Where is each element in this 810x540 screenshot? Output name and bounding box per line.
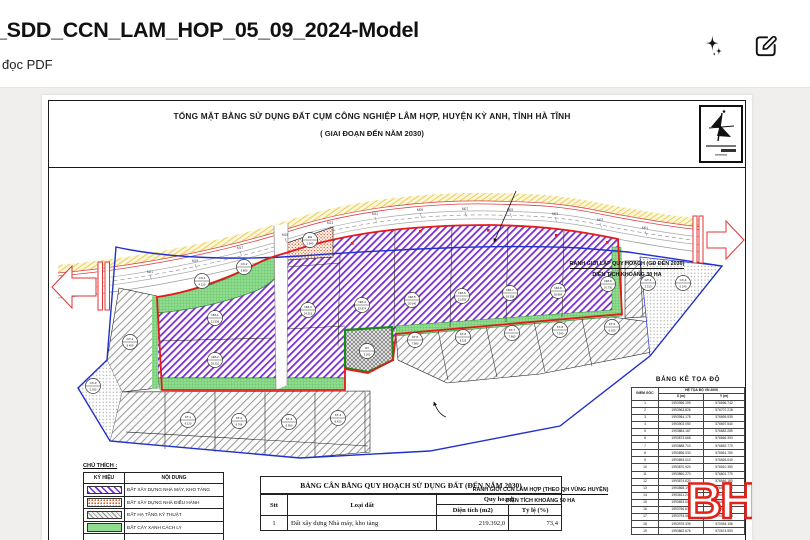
svg-text:M09: M09 bbox=[417, 208, 423, 212]
legend-swatch-orange-dots bbox=[87, 498, 122, 507]
svg-text:7.540: 7.540 bbox=[557, 331, 564, 335]
legend-col-content: NỘI DUNG bbox=[125, 473, 224, 484]
coords-row: 41993903.090576697.540 bbox=[632, 421, 745, 428]
legend-row: ĐẤT HẠ TẦNG KỸ THUẬT bbox=[84, 509, 224, 522]
file-title: _SDD_CCN_LAM_HOP_05_09_2024-Model bbox=[0, 18, 419, 43]
svg-text:8.764: 8.764 bbox=[236, 422, 243, 426]
svg-text:7.860: 7.860 bbox=[509, 334, 516, 338]
svg-text:HT: HT bbox=[365, 346, 369, 350]
balance-col-dientich: Diện tích (m2) bbox=[437, 505, 509, 516]
coords-row: 131993868.190576616.340 bbox=[632, 485, 745, 492]
svg-text:NM-7: NM-7 bbox=[506, 288, 514, 292]
coords-table: ĐIỂM GÓC HỆ TỌA ĐỘ VN 2000 X (m) Y (m) 1… bbox=[631, 387, 745, 535]
coords-row: 161993766.674570040.492 bbox=[632, 507, 745, 514]
svg-text:6.240: 6.240 bbox=[680, 284, 687, 288]
svg-text:NM-8: NM-8 bbox=[554, 286, 562, 290]
coords-col-y: Y (m) bbox=[704, 393, 745, 400]
balance-col-stt: Stt bbox=[261, 495, 288, 516]
annotation-30ha: RANH GIỚI LẬP QUY HOẠCH (GĐ ĐẾN 2030) DI… bbox=[500, 252, 752, 278]
svg-text:KT-1: KT-1 bbox=[185, 415, 192, 419]
svg-text:KT-9: KT-9 bbox=[609, 322, 616, 326]
legend-row: ĐẤT CÂY XANH CÁCH LY bbox=[84, 521, 224, 534]
svg-text:24.315: 24.315 bbox=[304, 311, 313, 315]
svg-text:CX-2: CX-2 bbox=[241, 262, 248, 266]
svg-text:8.950: 8.950 bbox=[286, 423, 293, 427]
legend-col-symbol: KÝ HIỆU bbox=[84, 473, 125, 484]
coords-col-point: ĐIỂM GÓC bbox=[632, 388, 659, 401]
internal-road bbox=[274, 223, 288, 390]
svg-text:M02: M02 bbox=[597, 218, 603, 222]
svg-text:ĐH: ĐH bbox=[308, 235, 312, 239]
legend-swatch-green bbox=[87, 523, 122, 532]
coords-row: 171993793.067570049.124 bbox=[632, 514, 745, 521]
legend-table: KÝ HIỆU NỘI DUNG ĐẤT XÂY DỰNG NHÀ MÁY, K… bbox=[83, 472, 224, 540]
svg-text:M21: M21 bbox=[147, 270, 153, 274]
svg-text:7.980: 7.980 bbox=[412, 341, 419, 345]
pdf-viewer-toolbar: _SDD_CCN_LAM_HOP_05_09_2024-Model đọc PD… bbox=[0, 0, 810, 88]
coords-row: 81993896.030576561.760 bbox=[632, 450, 745, 457]
legend-swatch-purple-hatch bbox=[87, 486, 122, 495]
svg-text:KT-5: KT-5 bbox=[412, 335, 419, 339]
coords-row: 111993860.270576601.770 bbox=[632, 471, 745, 478]
balance-table: Stt Loại đất Quy hoạch Diện tích (m2) Tỷ… bbox=[260, 494, 562, 531]
svg-text:NM-2: NM-2 bbox=[211, 355, 219, 359]
balance-title: BẢNG CÂN BẰNG QUY HOẠCH SỬ DỤNG ĐẤT (ĐẾN… bbox=[260, 476, 562, 494]
svg-text:5.310: 5.310 bbox=[645, 284, 652, 288]
coords-row: 11993996.199576696.742 bbox=[632, 400, 745, 407]
svg-text:NM-4: NM-4 bbox=[358, 300, 366, 304]
legend-title: CHÚ THÍCH : bbox=[83, 463, 224, 469]
coords-row: 51993884.167576682.285 bbox=[632, 428, 745, 435]
svg-text:M19: M19 bbox=[192, 259, 198, 263]
coords-row: 21993963.826576707.218 bbox=[632, 407, 745, 414]
svg-text:KT-6: KT-6 bbox=[460, 332, 467, 336]
svg-text:3.850: 3.850 bbox=[241, 268, 248, 272]
svg-text:8.420: 8.420 bbox=[335, 419, 342, 423]
coords-row: 101993870.920576510.350 bbox=[632, 464, 745, 471]
balance-col-loai: Loại đất bbox=[287, 495, 436, 516]
ai-sparkle-icon[interactable] bbox=[701, 33, 727, 59]
svg-text:NM-9: NM-9 bbox=[604, 279, 612, 283]
drawing-title: TỔNG MẶT BẰNG SỬ DỤNG ĐẤT CỤM CÔNG NGHIỆ… bbox=[62, 111, 682, 121]
legend-label: ĐẤT CÂY XANH CÁCH LY bbox=[125, 521, 224, 534]
svg-text:NM-1: NM-1 bbox=[211, 313, 219, 317]
svg-text:M15: M15 bbox=[282, 233, 288, 237]
coords-row: 61993873.668576666.393 bbox=[632, 436, 745, 443]
svg-text:KT-4: KT-4 bbox=[335, 413, 342, 417]
coords-row: 141993611.249576422.610 bbox=[632, 492, 745, 499]
svg-text:KT-3: KT-3 bbox=[286, 417, 293, 421]
balance-row: 1Đất xây dựng Nhà máy, kho tàng219.392,0… bbox=[261, 516, 562, 531]
coords-col-x: X (m) bbox=[659, 393, 704, 400]
svg-text:3.260: 3.260 bbox=[364, 352, 371, 356]
svg-text:KT-8: KT-8 bbox=[557, 325, 564, 329]
svg-text:20.640: 20.640 bbox=[408, 301, 417, 305]
svg-text:NM-6: NM-6 bbox=[458, 291, 466, 295]
svg-text:GT-2: GT-2 bbox=[645, 278, 652, 282]
svg-text:M13: M13 bbox=[327, 221, 333, 225]
coords-row: 71993888.710576652.770 bbox=[632, 443, 745, 450]
leader-50ha bbox=[434, 402, 446, 417]
coords-row: 151993653.007576918.420 bbox=[632, 499, 745, 506]
svg-text:M11: M11 bbox=[372, 212, 378, 216]
svg-text:19.874: 19.874 bbox=[358, 306, 367, 310]
svg-text:KT-2: KT-2 bbox=[236, 416, 243, 420]
coords-row: 31993954.175576695.939 bbox=[632, 414, 745, 421]
coords-row: 91993893.010576526.040 bbox=[632, 457, 745, 464]
svg-text:16.730: 16.730 bbox=[604, 285, 613, 289]
legend-swatch-gray-hatch bbox=[87, 511, 122, 520]
svg-text:M05: M05 bbox=[507, 208, 513, 212]
pdf-page[interactable]: TỔNG MẶT BẰNG SỬ DỤNG ĐẤT CỤM CÔNG NGHIỆ… bbox=[42, 95, 752, 540]
svg-text:CX-4: CX-4 bbox=[680, 278, 687, 282]
landuse-balance-table: BẢNG CÂN BẰNG QUY HOẠCH SỬ DỤNG ĐẤT (ĐẾN… bbox=[260, 476, 562, 531]
legend-row: ĐẤT XÂY DỰNG NHÀ MÁY, KHO TÀNG bbox=[84, 484, 224, 497]
file-subtitle: đọc PDF bbox=[2, 57, 53, 72]
svg-text:21.092: 21.092 bbox=[458, 297, 467, 301]
company-logo-box bbox=[699, 105, 743, 163]
svg-text:M17: M17 bbox=[237, 246, 243, 250]
balance-col-quyhoach: Quy hoạch bbox=[437, 495, 562, 505]
svg-text:CX-1: CX-1 bbox=[199, 276, 206, 280]
svg-text:9.120: 9.120 bbox=[185, 421, 192, 425]
svg-text:8.115: 8.115 bbox=[460, 338, 467, 342]
svg-text:6.920: 6.920 bbox=[609, 328, 616, 332]
svg-text:8.450: 8.450 bbox=[127, 343, 134, 347]
svg-text:21.506: 21.506 bbox=[211, 319, 220, 323]
coords-row: 121993874.620576646.180 bbox=[632, 478, 745, 485]
svg-text:GT-1: GT-1 bbox=[127, 337, 134, 341]
svg-text:19.358: 19.358 bbox=[506, 294, 515, 298]
legend-label: ĐẤT XÂY DỰNG NHÀ ĐIỀU HÀNH bbox=[125, 496, 224, 509]
svg-text:M03: M03 bbox=[552, 212, 558, 216]
svg-text:NM-3: NM-3 bbox=[304, 305, 312, 309]
svg-text:4.120: 4.120 bbox=[199, 282, 206, 286]
viewer-canvas: TỔNG MẶT BẰNG SỬ DỤNG ĐẤT CỤM CÔNG NGHIỆ… bbox=[0, 88, 810, 540]
balance-col-tyle: Tỷ lệ (%) bbox=[509, 505, 562, 516]
svg-text:2.940: 2.940 bbox=[307, 241, 314, 245]
coords-row: 191993862.676570674.593 bbox=[632, 528, 745, 535]
svg-text:M01: M01 bbox=[642, 226, 648, 230]
svg-text:18.210: 18.210 bbox=[211, 361, 220, 365]
coordinate-table: BẢNG KÊ TỌA ĐỘ ĐIỂM GÓC HỆ TỌA ĐỘ VN 200… bbox=[630, 376, 746, 535]
svg-text:CX-3: CX-3 bbox=[90, 381, 97, 385]
drawing-subtitle: ( GIAI ĐOẠN ĐẾN NĂM 2030) bbox=[62, 129, 682, 138]
svg-text:KT-7: KT-7 bbox=[509, 328, 516, 332]
edit-icon[interactable] bbox=[753, 33, 779, 59]
legend-label: ĐẤT HẠ TẦNG KỸ THUẬT bbox=[125, 509, 224, 522]
svg-text:NM-5: NM-5 bbox=[408, 295, 416, 299]
legend-label: ĐẤT XÂY DỰNG NHÀ MÁY, KHO TÀNG bbox=[125, 484, 224, 497]
svg-text:18.964: 18.964 bbox=[554, 292, 563, 296]
green-strip-south bbox=[158, 378, 345, 390]
coordinate-table-title: BẢNG KÊ TỌA ĐỘ bbox=[630, 376, 746, 383]
company-logo-bird-icon bbox=[701, 107, 741, 161]
svg-text:M07: M07 bbox=[462, 207, 468, 211]
legend-row: ĐẤT XÂY DỰNG NHÀ ĐIỀU HÀNH bbox=[84, 496, 224, 509]
coords-row: 181993978.339570054.156 bbox=[632, 521, 745, 528]
svg-text:2.180: 2.180 bbox=[90, 387, 97, 391]
legend: CHÚ THÍCH : KÝ HIỆU NỘI DUNG ĐẤT XÂY DỰN… bbox=[83, 463, 224, 540]
